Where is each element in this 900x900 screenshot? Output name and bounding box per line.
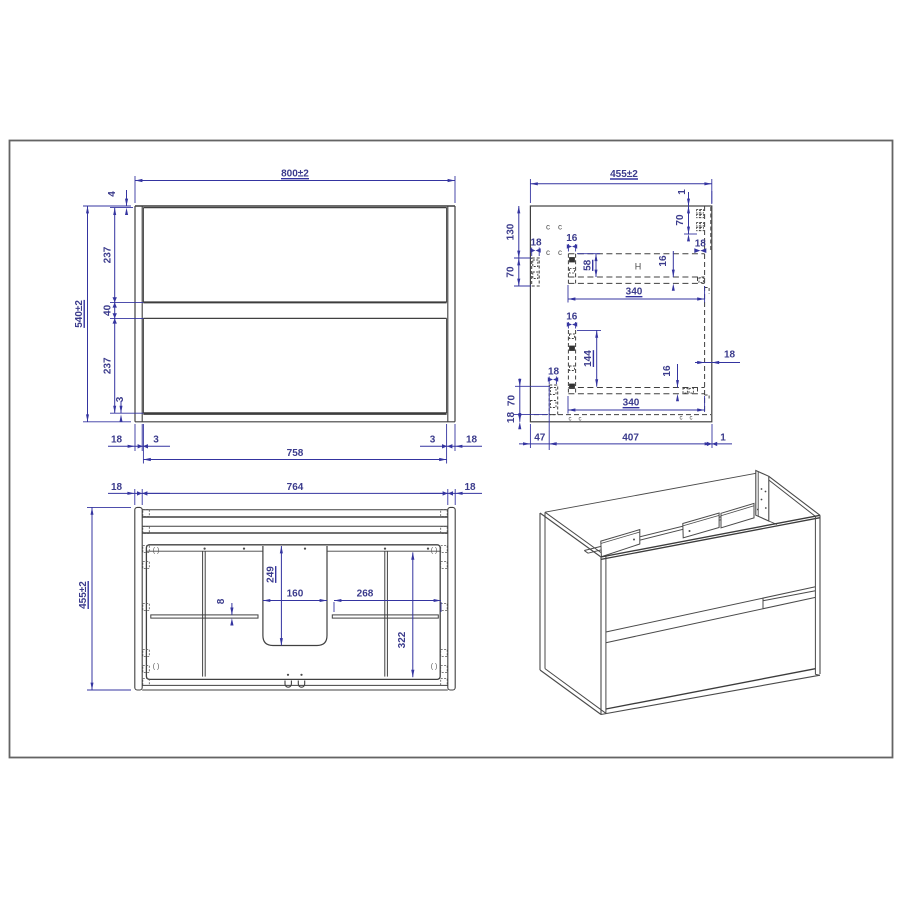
svg-text:c: c <box>546 248 550 257</box>
svg-text:18: 18 <box>111 482 123 493</box>
svg-text:1: 1 <box>720 433 726 444</box>
svg-text:4: 4 <box>107 191 118 197</box>
svg-text:58: 58 <box>583 259 594 271</box>
svg-text:455±2: 455±2 <box>78 581 89 609</box>
svg-text:16: 16 <box>658 255 669 267</box>
svg-text:800±2: 800±2 <box>281 169 309 180</box>
svg-text:c: c <box>680 416 683 422</box>
svg-text:18: 18 <box>548 367 560 378</box>
svg-text:H: H <box>635 262 642 272</box>
svg-text:47: 47 <box>534 433 546 444</box>
svg-text:c: c <box>546 223 550 232</box>
svg-text:( ): ( ) <box>153 664 160 671</box>
svg-text:758: 758 <box>287 448 304 459</box>
svg-text:237: 237 <box>102 246 113 263</box>
svg-text:18: 18 <box>111 434 123 445</box>
svg-text:3: 3 <box>430 434 436 445</box>
svg-text:764: 764 <box>287 482 304 493</box>
svg-text:c: c <box>690 416 693 422</box>
svg-text:8: 8 <box>216 598 227 604</box>
svg-text:160: 160 <box>287 589 304 600</box>
svg-text:16: 16 <box>662 365 673 377</box>
svg-text:70: 70 <box>505 266 516 278</box>
svg-text:3: 3 <box>153 434 159 445</box>
svg-text:130: 130 <box>505 223 516 240</box>
svg-text:540±2: 540±2 <box>74 300 85 328</box>
svg-text:18: 18 <box>464 482 476 493</box>
svg-text:16: 16 <box>566 312 578 323</box>
svg-text:144: 144 <box>583 350 594 367</box>
svg-text:18: 18 <box>695 238 707 249</box>
svg-text:322: 322 <box>397 631 408 648</box>
svg-text:407: 407 <box>622 433 639 444</box>
svg-text:70: 70 <box>506 395 517 407</box>
svg-text:455±2: 455±2 <box>610 169 638 180</box>
svg-text:18: 18 <box>530 238 542 249</box>
svg-text:( ): ( ) <box>153 548 160 555</box>
svg-text:16: 16 <box>566 233 578 244</box>
svg-text:237: 237 <box>102 357 113 374</box>
svg-text:268: 268 <box>357 589 374 600</box>
svg-text:c: c <box>569 417 572 423</box>
svg-text:c: c <box>558 223 562 232</box>
svg-text:c: c <box>579 417 582 423</box>
svg-text:1: 1 <box>677 189 688 195</box>
svg-text:340: 340 <box>626 287 643 298</box>
svg-text:( ): ( ) <box>431 664 438 671</box>
svg-text:40: 40 <box>102 304 113 316</box>
svg-text:18: 18 <box>466 434 478 445</box>
svg-text:( ): ( ) <box>431 548 438 555</box>
svg-text:70: 70 <box>675 214 686 226</box>
svg-text:18: 18 <box>724 350 736 361</box>
svg-text:249: 249 <box>266 566 277 583</box>
svg-text:c: c <box>558 248 562 257</box>
svg-text:18: 18 <box>506 412 517 424</box>
svg-text:340: 340 <box>623 398 640 409</box>
